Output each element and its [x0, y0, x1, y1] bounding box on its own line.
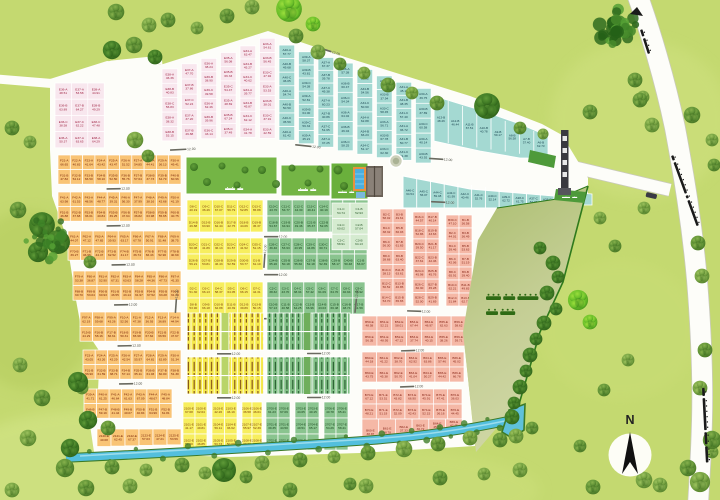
- svg-text:12.00: 12.00: [121, 187, 130, 191]
- svg-text:56.30: 56.30: [122, 199, 130, 203]
- svg-text:51.30: 51.30: [189, 290, 197, 294]
- svg-text:49.41: 49.41: [171, 162, 179, 166]
- svg-text:64.13: 64.13: [355, 242, 363, 246]
- svg-text:41.35: 41.35: [171, 278, 179, 282]
- svg-text:40.83: 40.83: [73, 162, 81, 166]
- svg-text:62.63: 62.63: [440, 324, 448, 328]
- svg-text:61.65: 61.65: [396, 244, 404, 248]
- svg-text:52.85: 52.85: [240, 208, 248, 212]
- svg-text:56.90: 56.90: [85, 372, 93, 376]
- svg-text:56.45: 56.45: [263, 60, 271, 64]
- svg-text:58.28: 58.28: [135, 278, 143, 282]
- svg-text:40.14: 40.14: [429, 219, 437, 223]
- svg-text:52.14: 52.14: [489, 198, 497, 202]
- svg-text:44.30: 44.30: [295, 208, 303, 212]
- svg-text:38.34: 38.34: [294, 290, 302, 294]
- svg-text:47.70: 47.70: [185, 71, 193, 75]
- svg-text:51.19: 51.19: [380, 412, 388, 416]
- svg-text:61.99: 61.99: [447, 195, 455, 199]
- svg-text:50.31: 50.31: [120, 334, 128, 338]
- svg-text:59.71: 59.71: [455, 339, 463, 343]
- svg-text:44.91: 44.91: [92, 91, 100, 95]
- svg-text:67.62: 67.62: [146, 334, 154, 338]
- svg-text:45.21: 45.21: [302, 137, 310, 141]
- svg-text:66.13: 66.13: [202, 290, 210, 294]
- svg-text:38.70: 38.70: [395, 360, 403, 364]
- svg-text:39.27: 39.27: [70, 253, 78, 257]
- svg-text:60.02: 60.02: [337, 226, 345, 230]
- svg-text:40.07: 40.07: [124, 411, 132, 415]
- svg-text:66.15: 66.15: [240, 290, 248, 294]
- svg-text:47.48: 47.48: [92, 124, 100, 128]
- svg-text:37.25: 37.25: [322, 141, 330, 145]
- svg-text:51.65: 51.65: [322, 128, 330, 132]
- svg-text:52.86: 52.86: [416, 232, 424, 236]
- svg-text:40.19: 40.19: [320, 208, 328, 212]
- svg-text:51.48: 51.48: [158, 238, 166, 242]
- svg-text:52.93: 52.93: [355, 211, 363, 215]
- svg-text:48.67: 48.67: [149, 396, 157, 400]
- svg-text:40.84: 40.84: [97, 214, 105, 218]
- svg-text:12.00: 12.00: [322, 352, 331, 356]
- svg-text:45.02: 45.02: [453, 360, 461, 364]
- svg-text:36.13: 36.13: [215, 246, 223, 250]
- svg-text:38.16: 38.16: [146, 199, 154, 203]
- svg-text:67.09: 67.09: [280, 410, 288, 414]
- svg-text:67.51: 67.51: [466, 126, 474, 130]
- svg-text:12.00: 12.00: [232, 396, 241, 400]
- svg-text:43.42: 43.42: [97, 162, 105, 166]
- svg-text:41.04: 41.04: [409, 375, 417, 379]
- svg-text:36.03: 36.03: [451, 397, 459, 401]
- svg-text:37.86: 37.86: [185, 87, 193, 91]
- svg-text:62.45: 62.45: [114, 438, 122, 442]
- svg-text:49.29: 49.29: [92, 107, 100, 111]
- svg-text:53.56: 53.56: [170, 437, 178, 441]
- svg-text:49.46: 49.46: [295, 224, 303, 228]
- svg-text:47.82: 47.82: [60, 177, 68, 181]
- svg-text:40.86: 40.86: [322, 115, 330, 119]
- svg-text:43.81: 43.81: [302, 72, 310, 76]
- svg-text:50.91: 50.91: [146, 238, 154, 242]
- svg-text:44.41: 44.41: [146, 162, 154, 166]
- svg-text:56.30: 56.30: [383, 244, 391, 248]
- svg-text:39.50: 39.50: [416, 246, 424, 250]
- svg-text:42.26: 42.26: [214, 410, 222, 414]
- svg-text:57.14: 57.14: [122, 372, 130, 376]
- svg-text:59.19: 59.19: [99, 411, 107, 415]
- svg-text:62.52: 62.52: [108, 253, 116, 257]
- svg-text:67.78: 67.78: [133, 238, 141, 242]
- svg-text:60.47: 60.47: [341, 85, 349, 89]
- svg-text:58.41: 58.41: [338, 426, 346, 430]
- svg-text:51.19: 51.19: [462, 261, 470, 265]
- svg-text:45.59: 45.59: [283, 120, 291, 124]
- svg-text:36.74: 36.74: [133, 253, 141, 257]
- svg-text:59.17: 59.17: [494, 133, 502, 137]
- svg-text:57.77: 57.77: [283, 52, 291, 56]
- svg-text:62.22: 62.22: [76, 124, 84, 128]
- svg-text:37.74: 37.74: [410, 339, 418, 343]
- svg-text:59.21: 59.21: [189, 262, 197, 266]
- svg-text:46.88: 46.88: [60, 214, 68, 218]
- svg-text:60.70: 60.70: [75, 293, 83, 297]
- svg-text:41.52: 41.52: [240, 246, 248, 250]
- svg-text:58.37: 58.37: [215, 290, 223, 294]
- svg-text:43.70: 43.70: [269, 208, 277, 212]
- svg-text:50.70: 50.70: [395, 375, 403, 379]
- svg-text:52.59: 52.59: [227, 262, 235, 266]
- svg-text:49.38: 49.38: [322, 90, 330, 94]
- svg-text:47.92: 47.92: [263, 74, 271, 78]
- svg-text:64.29: 64.29: [92, 140, 100, 144]
- svg-text:61.03: 61.03: [147, 372, 155, 376]
- svg-text:55.60: 55.60: [294, 262, 302, 266]
- svg-text:67.07: 67.07: [215, 208, 223, 212]
- svg-text:67.44: 67.44: [410, 324, 418, 328]
- svg-text:44.06: 44.06: [240, 224, 248, 228]
- svg-text:53.77: 53.77: [240, 262, 248, 266]
- svg-text:37.49: 37.49: [224, 131, 232, 135]
- svg-text:37.33: 37.33: [400, 429, 408, 433]
- svg-text:41.86: 41.86: [202, 246, 210, 250]
- svg-text:49.41: 49.41: [307, 208, 315, 212]
- svg-text:50.37: 50.37: [59, 140, 67, 144]
- svg-text:37.68: 37.68: [73, 214, 81, 218]
- svg-text:41.69: 41.69: [429, 299, 437, 303]
- svg-text:57.46: 57.46: [438, 360, 446, 364]
- svg-text:43.26: 43.26: [108, 319, 116, 323]
- svg-text:40.84: 40.84: [137, 411, 145, 415]
- svg-text:54.85: 54.85: [134, 162, 142, 166]
- svg-text:39.96: 39.96: [205, 119, 213, 123]
- svg-text:44.65: 44.65: [297, 410, 305, 414]
- svg-text:52.90: 52.90: [158, 253, 166, 257]
- svg-text:66.18: 66.18: [202, 306, 210, 310]
- svg-text:12.00: 12.00: [322, 396, 331, 400]
- svg-text:12.00: 12.00: [126, 263, 135, 267]
- svg-text:44.18: 44.18: [365, 360, 373, 364]
- svg-text:58.02: 58.02: [383, 216, 391, 220]
- svg-text:38.58: 38.58: [59, 124, 67, 128]
- svg-text:12.00: 12.00: [446, 200, 455, 204]
- svg-text:52.56: 52.56: [120, 319, 128, 323]
- svg-text:49.81: 49.81: [197, 426, 205, 430]
- svg-text:12.00: 12.00: [129, 303, 138, 307]
- svg-text:62.88: 62.88: [215, 306, 223, 310]
- svg-text:42.59: 42.59: [263, 131, 271, 135]
- svg-text:62.12: 62.12: [244, 118, 252, 122]
- svg-text:38.75: 38.75: [171, 238, 179, 242]
- svg-text:62.73: 62.73: [537, 144, 545, 148]
- svg-text:12.00: 12.00: [422, 309, 431, 313]
- svg-text:55.97: 55.97: [243, 426, 251, 430]
- svg-text:50.15: 50.15: [253, 306, 261, 310]
- svg-text:43.26: 43.26: [98, 357, 106, 361]
- svg-text:56.83: 56.83: [166, 105, 174, 109]
- svg-text:42.29: 42.29: [110, 357, 118, 361]
- svg-text:57.03: 57.03: [142, 437, 150, 441]
- svg-text:36.89: 36.89: [158, 319, 166, 323]
- svg-text:47.21: 47.21: [156, 437, 164, 441]
- svg-text:44.45: 44.45: [451, 412, 459, 416]
- svg-text:61.59: 61.59: [98, 372, 106, 376]
- svg-text:57.38: 57.38: [341, 70, 349, 74]
- svg-text:50.52: 50.52: [383, 285, 391, 289]
- svg-text:53.07: 53.07: [357, 262, 365, 266]
- svg-text:61.25: 61.25: [99, 396, 107, 400]
- svg-text:47.65: 47.65: [96, 238, 104, 242]
- svg-text:58.91: 58.91: [337, 242, 345, 246]
- svg-text:41.44: 41.44: [112, 411, 120, 415]
- svg-text:57.64: 57.64: [134, 177, 142, 181]
- svg-text:61.09: 61.09: [318, 290, 326, 294]
- svg-text:36.16: 36.16: [437, 412, 445, 416]
- svg-text:58.62: 58.62: [455, 324, 463, 328]
- svg-text:47.12: 47.12: [395, 339, 403, 343]
- svg-text:41.17: 41.17: [429, 246, 437, 250]
- svg-text:37.91: 37.91: [263, 117, 271, 121]
- svg-text:58.10: 58.10: [97, 177, 105, 181]
- svg-text:47.64: 47.64: [122, 214, 130, 218]
- svg-text:54.61: 54.61: [263, 45, 271, 49]
- svg-text:62.88: 62.88: [361, 119, 369, 123]
- svg-text:63.17: 63.17: [121, 238, 129, 242]
- svg-text:48.51: 48.51: [59, 91, 67, 95]
- svg-text:43.70: 43.70: [282, 290, 290, 294]
- svg-text:60.93: 60.93: [99, 293, 107, 297]
- svg-text:44.29: 44.29: [82, 334, 90, 338]
- svg-text:53.81: 53.81: [202, 262, 210, 266]
- svg-text:48.74: 48.74: [343, 306, 351, 310]
- svg-text:37.61: 37.61: [416, 259, 424, 263]
- svg-text:63.40: 63.40: [396, 258, 404, 262]
- svg-text:43.14: 43.14: [123, 293, 131, 297]
- svg-text:44.86: 44.86: [307, 246, 315, 250]
- svg-text:51.30: 51.30: [171, 372, 179, 376]
- svg-text:45.98: 45.98: [416, 272, 424, 276]
- svg-text:53.15: 53.15: [166, 134, 174, 138]
- svg-text:58.16: 58.16: [95, 334, 103, 338]
- svg-text:12.00: 12.00: [175, 289, 180, 298]
- svg-text:50.27: 50.27: [424, 375, 432, 379]
- svg-text:41.78: 41.78: [244, 131, 252, 135]
- svg-text:54.26: 54.26: [326, 426, 334, 430]
- svg-text:64.05: 64.05: [227, 290, 235, 294]
- svg-text:39.40: 39.40: [462, 274, 470, 278]
- svg-text:62.64: 62.64: [197, 410, 205, 414]
- svg-text:53.51: 53.51: [380, 397, 388, 401]
- svg-text:57.42: 57.42: [306, 290, 314, 294]
- svg-text:46.19: 46.19: [227, 410, 235, 414]
- svg-text:60.58: 60.58: [419, 126, 427, 130]
- svg-text:39.89: 39.89: [240, 306, 248, 310]
- svg-text:48.77: 48.77: [97, 199, 105, 203]
- svg-text:38.71: 38.71: [110, 372, 118, 376]
- svg-text:54.12: 54.12: [73, 177, 81, 181]
- svg-text:66.61: 66.61: [108, 334, 116, 338]
- svg-text:53.04: 53.04: [87, 293, 95, 297]
- svg-text:58.45: 58.45: [380, 110, 388, 114]
- svg-text:50.60: 50.60: [361, 105, 369, 109]
- svg-text:67.37: 67.37: [322, 64, 330, 68]
- svg-text:64.70: 64.70: [331, 290, 339, 294]
- svg-text:45.38: 45.38: [380, 375, 388, 379]
- svg-text:45.37: 45.37: [253, 224, 261, 228]
- svg-text:66.96: 66.96: [306, 306, 314, 310]
- svg-text:62.30: 62.30: [380, 151, 388, 155]
- svg-text:63.89: 63.89: [59, 107, 67, 111]
- svg-text:66.56: 66.56: [158, 334, 166, 338]
- svg-text:65.17: 65.17: [309, 426, 317, 430]
- svg-text:38.01: 38.01: [263, 103, 271, 107]
- svg-text:36.58: 36.58: [462, 222, 470, 226]
- svg-text:55.97: 55.97: [134, 357, 142, 361]
- svg-text:51.52: 51.52: [122, 162, 130, 166]
- svg-text:67.12: 67.12: [365, 397, 373, 401]
- svg-text:64.54: 64.54: [406, 192, 414, 196]
- svg-text:42.68: 42.68: [159, 199, 167, 203]
- svg-text:66.33: 66.33: [224, 74, 232, 78]
- svg-text:40.46: 40.46: [461, 196, 469, 200]
- svg-text:12.00: 12.00: [444, 158, 453, 163]
- svg-text:36.49: 36.49: [462, 235, 470, 239]
- svg-text:50.48: 50.48: [344, 262, 352, 266]
- svg-text:39.78: 39.78: [322, 77, 330, 81]
- svg-text:44.31: 44.31: [253, 290, 261, 294]
- svg-text:64.94: 64.94: [282, 224, 290, 228]
- svg-text:53.58: 53.58: [76, 91, 84, 95]
- svg-text:39.93: 39.93: [108, 238, 116, 242]
- svg-text:63.90: 63.90: [202, 224, 210, 228]
- svg-text:67.78: 67.78: [380, 137, 388, 141]
- svg-text:41.71: 41.71: [86, 396, 94, 400]
- svg-text:65.98: 65.98: [133, 334, 141, 338]
- svg-text:65.11: 65.11: [134, 372, 142, 376]
- svg-text:63.98: 63.98: [60, 199, 68, 203]
- svg-text:42.43: 42.43: [408, 412, 416, 416]
- svg-text:56.58: 56.58: [508, 137, 516, 141]
- svg-text:40.14: 40.14: [419, 141, 427, 145]
- svg-text:65.91: 65.91: [449, 274, 457, 278]
- svg-text:45.91: 45.91: [422, 397, 430, 401]
- svg-text:41.22: 41.22: [380, 360, 388, 364]
- svg-text:43.14: 43.14: [205, 132, 213, 136]
- svg-text:62.46: 62.46: [205, 105, 213, 109]
- svg-text:49.58: 49.58: [205, 92, 213, 96]
- svg-text:52.76: 52.76: [475, 197, 483, 201]
- svg-text:53.63: 53.63: [462, 248, 470, 252]
- svg-text:46.97: 46.97: [425, 324, 433, 328]
- svg-text:38.13: 38.13: [383, 271, 391, 275]
- svg-text:49.83: 49.83: [462, 287, 470, 291]
- svg-text:64.81: 64.81: [147, 357, 155, 361]
- svg-text:53.53: 53.53: [263, 88, 271, 92]
- svg-text:43.03: 43.03: [318, 306, 326, 310]
- svg-text:48.56: 48.56: [85, 199, 93, 203]
- svg-text:44.50: 44.50: [280, 426, 288, 430]
- svg-text:45.76: 45.76: [429, 272, 437, 276]
- svg-text:66.78: 66.78: [453, 375, 461, 379]
- svg-text:51.17: 51.17: [361, 147, 369, 151]
- svg-text:37.89: 37.89: [419, 111, 427, 115]
- svg-text:57.40: 57.40: [400, 115, 408, 119]
- svg-text:64.00: 64.00: [302, 111, 310, 115]
- svg-text:56.08: 56.08: [224, 60, 232, 64]
- svg-text:42.06: 42.06: [449, 261, 457, 265]
- svg-text:12.00: 12.00: [279, 273, 288, 277]
- svg-text:N: N: [625, 413, 634, 427]
- svg-text:45.87: 45.87: [244, 105, 252, 109]
- svg-text:65.37: 65.37: [307, 224, 315, 228]
- svg-text:36.13: 36.13: [159, 162, 167, 166]
- svg-text:52.39: 52.39: [319, 262, 327, 266]
- svg-text:41.17: 41.17: [185, 426, 193, 430]
- svg-text:54.47: 54.47: [224, 88, 232, 92]
- svg-text:43.92: 43.92: [419, 156, 427, 160]
- svg-text:37.73: 37.73: [146, 177, 154, 181]
- svg-text:46.55: 46.55: [111, 293, 119, 297]
- svg-text:36.72: 36.72: [400, 128, 408, 132]
- svg-text:53.70: 53.70: [383, 299, 391, 303]
- svg-text:67.37: 67.37: [128, 437, 136, 441]
- svg-text:63.61: 63.61: [396, 271, 404, 275]
- svg-text:47.41: 47.41: [437, 397, 445, 401]
- svg-text:61.23: 61.23: [268, 410, 276, 414]
- svg-text:56.07: 56.07: [420, 193, 428, 197]
- svg-text:44.07: 44.07: [70, 238, 78, 242]
- svg-text:43.63: 43.63: [429, 232, 437, 236]
- svg-text:49.51: 49.51: [297, 426, 305, 430]
- svg-text:40.19: 40.19: [189, 208, 197, 212]
- svg-text:62.72: 62.72: [502, 198, 510, 202]
- svg-text:55.65: 55.65: [159, 214, 167, 218]
- svg-text:52.90: 52.90: [99, 278, 107, 282]
- svg-text:56.71: 56.71: [380, 124, 388, 128]
- svg-text:66.23: 66.23: [361, 133, 369, 137]
- svg-text:40.15: 40.15: [309, 410, 317, 414]
- svg-text:66.65: 66.65: [60, 162, 68, 166]
- svg-text:59.48: 59.48: [434, 194, 442, 198]
- svg-text:39.35: 39.35: [268, 426, 276, 430]
- svg-text:67.68: 67.68: [185, 410, 193, 414]
- svg-text:51.15: 51.15: [253, 246, 261, 250]
- svg-text:50.50: 50.50: [283, 106, 291, 110]
- svg-text:49.88: 49.88: [185, 132, 193, 136]
- svg-text:39.40: 39.40: [269, 246, 277, 250]
- svg-text:46.85: 46.85: [197, 442, 205, 446]
- svg-text:62.92: 62.92: [409, 360, 417, 364]
- svg-text:41.17: 41.17: [121, 253, 129, 257]
- svg-text:61.42: 61.42: [283, 133, 291, 137]
- svg-text:40.94: 40.94: [343, 290, 351, 294]
- svg-text:46.64: 46.64: [112, 396, 120, 400]
- svg-text:64.79: 64.79: [159, 177, 167, 181]
- svg-text:62.21: 62.21: [449, 287, 457, 291]
- svg-text:63.63: 63.63: [123, 278, 131, 282]
- svg-text:60.96: 60.96: [171, 177, 179, 181]
- svg-text:66.03: 66.03: [396, 230, 404, 234]
- svg-text:66.50: 66.50: [85, 177, 93, 181]
- svg-text:12.00: 12.00: [232, 352, 241, 356]
- svg-text:64.02: 64.02: [341, 114, 349, 118]
- svg-text:48.69: 48.69: [224, 102, 232, 106]
- svg-text:43.05: 43.05: [85, 357, 93, 361]
- svg-text:39.75: 39.75: [419, 96, 427, 100]
- svg-text:47.12: 47.12: [83, 238, 91, 242]
- svg-text:61.97: 61.97: [135, 293, 143, 297]
- svg-text:58.25: 58.25: [341, 143, 349, 147]
